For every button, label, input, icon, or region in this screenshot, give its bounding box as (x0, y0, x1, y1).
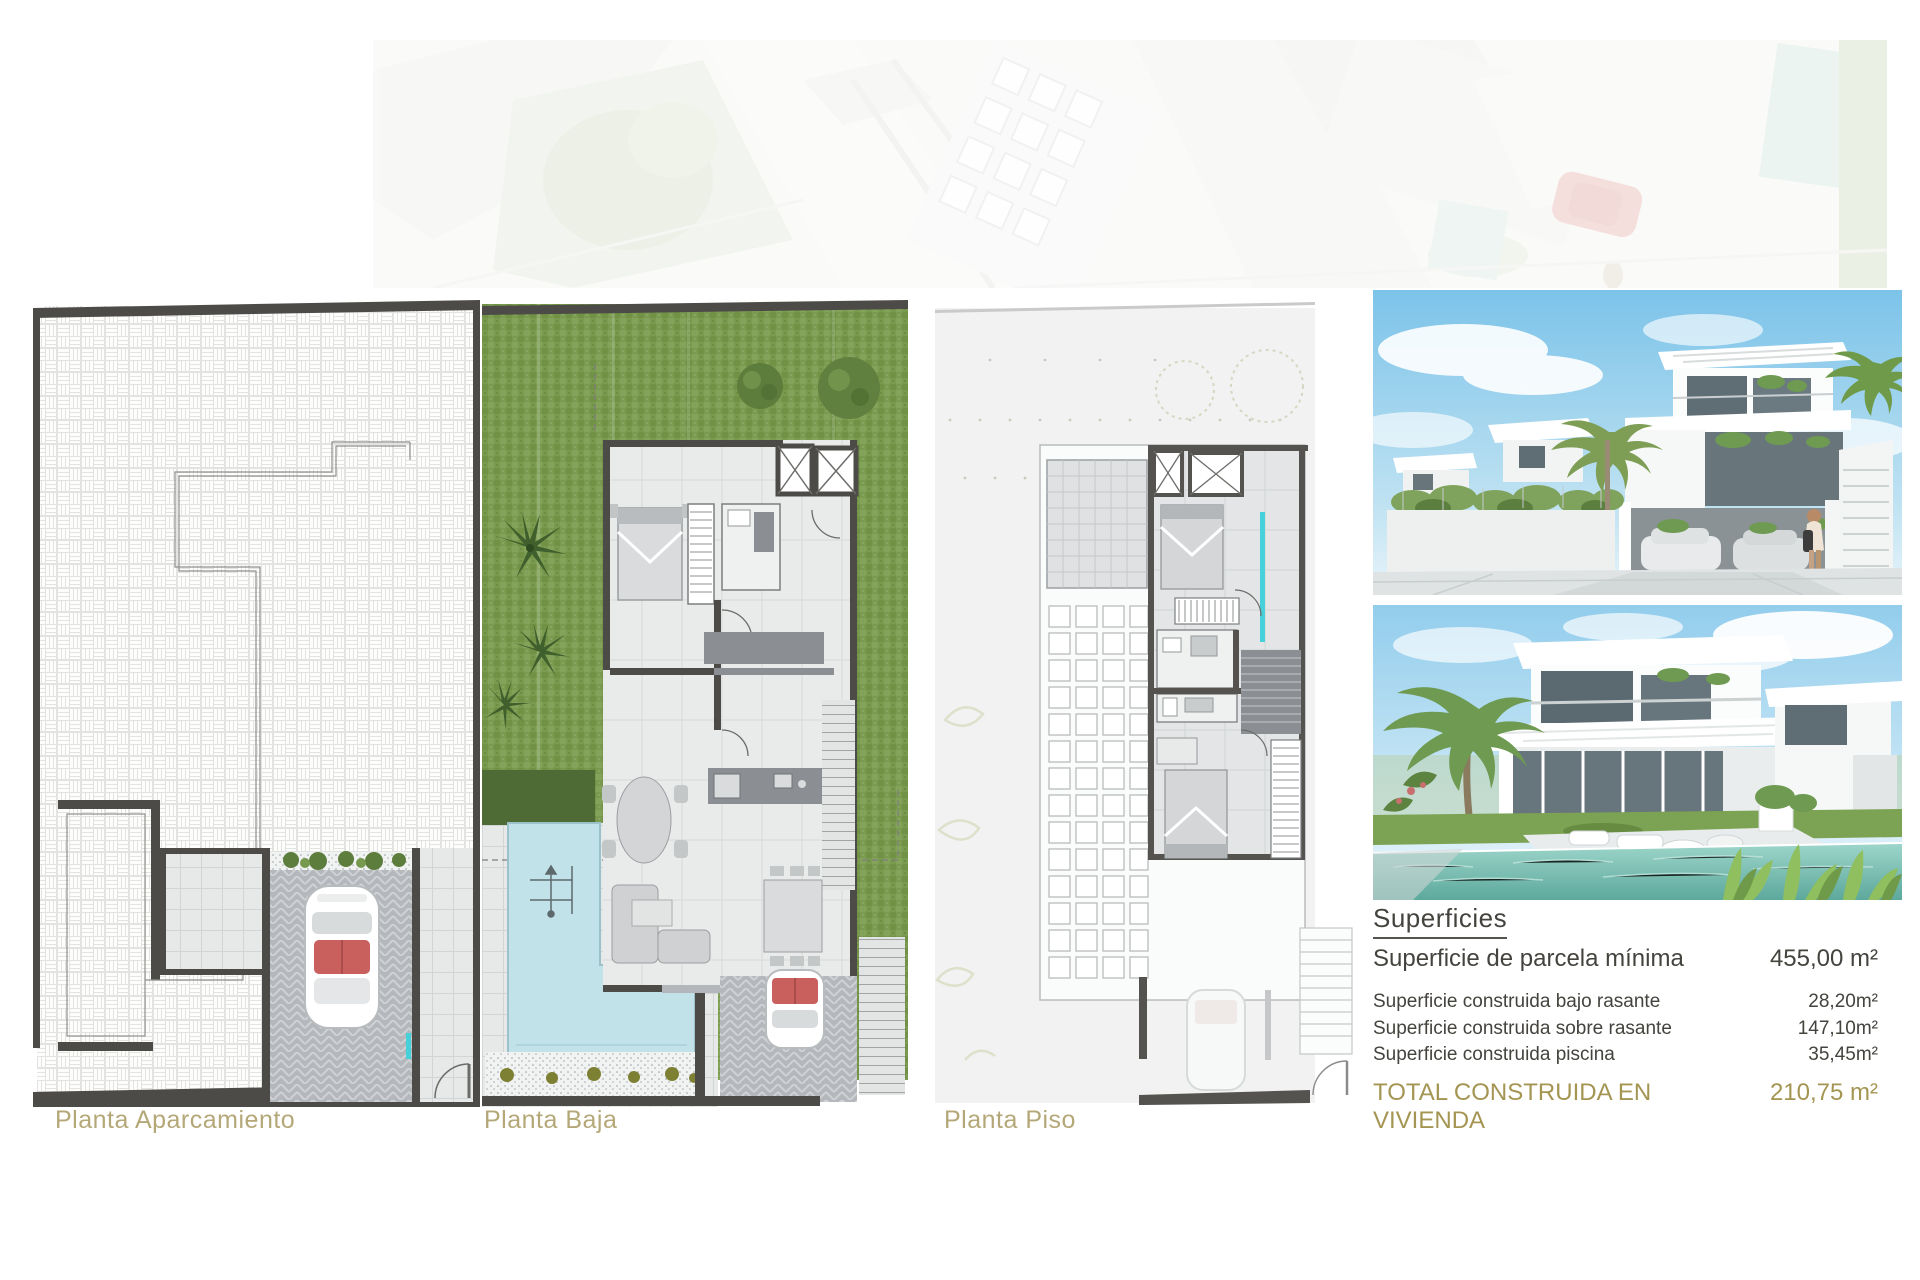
row-label: Superficie construida piscina (1373, 1044, 1615, 1066)
bathroom (722, 504, 780, 590)
glass-balustrade (1260, 512, 1265, 642)
row-label: Superficie construida sobre rasante (1373, 1018, 1672, 1040)
superficies-title: Superficies (1373, 903, 1507, 939)
superficies-row: Superficie construida piscina 35,45m² (1373, 1044, 1878, 1066)
row-label: Superficie construida bajo rasante (1373, 991, 1660, 1013)
superficies-row: Superficie de parcela mínima 455,00 m² (1373, 945, 1878, 973)
row-value: 147,10m² (1798, 1018, 1878, 1040)
row-value: 35,45m² (1808, 1044, 1878, 1066)
glass-panel (406, 1033, 411, 1059)
total-value: 210,75 m² (1770, 1079, 1878, 1135)
caption-planta-aparcamiento: Planta Aparcamiento (55, 1106, 295, 1135)
superficies-panel: Superficies Superficie de parcela mínima… (1373, 903, 1878, 1138)
superficies-row: Superficie construida bajo rasante 28,20… (1373, 991, 1878, 1013)
bed (1161, 505, 1223, 589)
floorplan-planta-aparcamiento (33, 300, 480, 1107)
dining-table (764, 866, 822, 966)
hedge (482, 770, 595, 825)
roof-terrace (1047, 460, 1147, 588)
aerial-render-faded (373, 40, 1887, 288)
row-value: 28,20m² (1808, 991, 1878, 1013)
car-icon (305, 886, 379, 1028)
stairs (822, 700, 855, 890)
caption-planta-baja: Planta Baja (484, 1106, 617, 1135)
caption-planta-piso: Planta Piso (944, 1106, 1076, 1135)
driveway (720, 970, 857, 1106)
render-pool-view (1373, 605, 1902, 900)
row-value: 455,00 m² (1770, 945, 1878, 973)
floorplan-planta-piso (935, 300, 1360, 1107)
storage-room (160, 848, 268, 975)
house-ground-floor (602, 440, 857, 993)
upper-rooms (1148, 445, 1308, 860)
exterior-stairs (859, 937, 905, 1095)
render-street-view (1373, 290, 1902, 595)
shaft-boxes (778, 446, 856, 494)
wardrobe (688, 504, 714, 604)
boundary-wall (1387, 485, 1624, 572)
floorplan-planta-baja (482, 300, 908, 1107)
total-label: TOTAL CONSTRUIDA EN VIVIENDA (1373, 1079, 1770, 1135)
driveway (262, 848, 420, 1107)
superficies-row: Superficie construida sobre rasante 147,… (1373, 1018, 1878, 1040)
stairs (1241, 650, 1301, 734)
bedroom (610, 504, 692, 600)
superficies-total-row: TOTAL CONSTRUIDA EN VIVIENDA 210,75 m² (1373, 1079, 1878, 1135)
row-label: Superficie de parcela mínima (1373, 945, 1684, 973)
aerial-render-graphic (373, 40, 1887, 288)
stairs-right (1839, 440, 1893, 590)
plan-sheet: Superficies Superficie de parcela mínima… (0, 0, 1920, 1280)
ghost-car (1187, 990, 1245, 1090)
car-icon (766, 970, 824, 1048)
